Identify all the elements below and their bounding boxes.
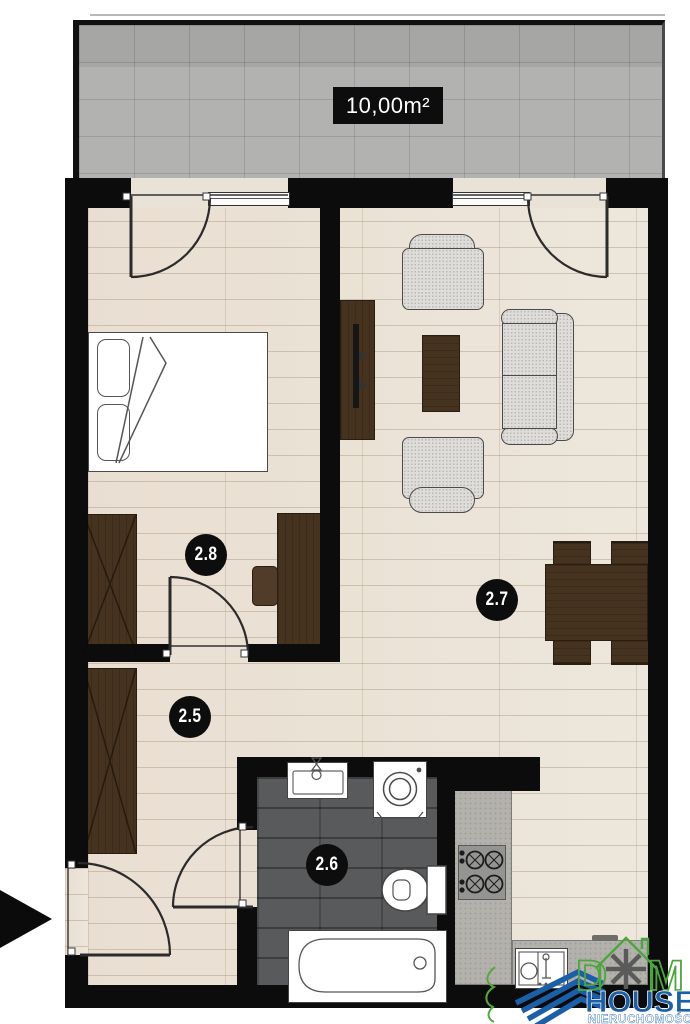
wall-right: [648, 178, 668, 1008]
wall-left-upper: [65, 178, 88, 868]
room-label-living: 2.7: [476, 579, 518, 621]
desk: [277, 513, 321, 653]
wall-divider-bedroom-living: [320, 195, 340, 662]
logo-subtitle: NIERUCHOMOŚCI: [588, 1013, 690, 1024]
entrance-arrow-icon: [0, 890, 52, 948]
wall-bathroom-left-upper: [237, 777, 257, 830]
window: [452, 192, 530, 206]
cabinet-handle: [592, 935, 618, 941]
wardrobe-bedroom: [83, 514, 137, 654]
stove: [458, 845, 506, 900]
wardrobe-hallway: [83, 668, 137, 854]
room-number: 2.7: [486, 589, 509, 611]
room-number: 2.8: [195, 544, 218, 566]
dining-chair: [553, 541, 591, 565]
pillow: [97, 404, 130, 461]
entrance-threshold: [65, 868, 88, 955]
desk-chair: [252, 566, 278, 606]
wall-bedroom-bottom-left: [65, 644, 170, 662]
tv-stand: [340, 300, 375, 440]
floor-plan: 10,00m²: [0, 0, 690, 1024]
room-label-bathroom: 2.6: [306, 844, 348, 886]
washing-machine: [373, 761, 427, 818]
bathtub: [288, 930, 447, 1003]
balcony-area-text: 10,00m²: [346, 93, 430, 119]
room-label-bedroom: 2.8: [185, 534, 227, 576]
coffee-table: [422, 335, 460, 412]
room-number: 2.5: [179, 706, 202, 728]
dining-chair: [611, 640, 649, 665]
room-number: 2.6: [316, 854, 339, 876]
wall-top-mid: [288, 178, 453, 208]
window: [208, 192, 290, 206]
pillow: [97, 339, 130, 397]
balcony-outer-line: [90, 14, 665, 16]
dining-table: [545, 564, 648, 641]
dining-chair: [553, 640, 591, 665]
balcony-area-label: 10,00m²: [333, 87, 443, 124]
wall-kitchen-corner: [440, 777, 540, 791]
bathroom-sink: [287, 762, 348, 799]
kitchen-sink: [515, 948, 568, 989]
room-label-hallway: 2.5: [169, 696, 211, 738]
dining-chair: [611, 541, 649, 565]
wall-bedroom-bottom-right: [248, 644, 340, 662]
wall-bathroom-left-lower: [237, 907, 257, 985]
